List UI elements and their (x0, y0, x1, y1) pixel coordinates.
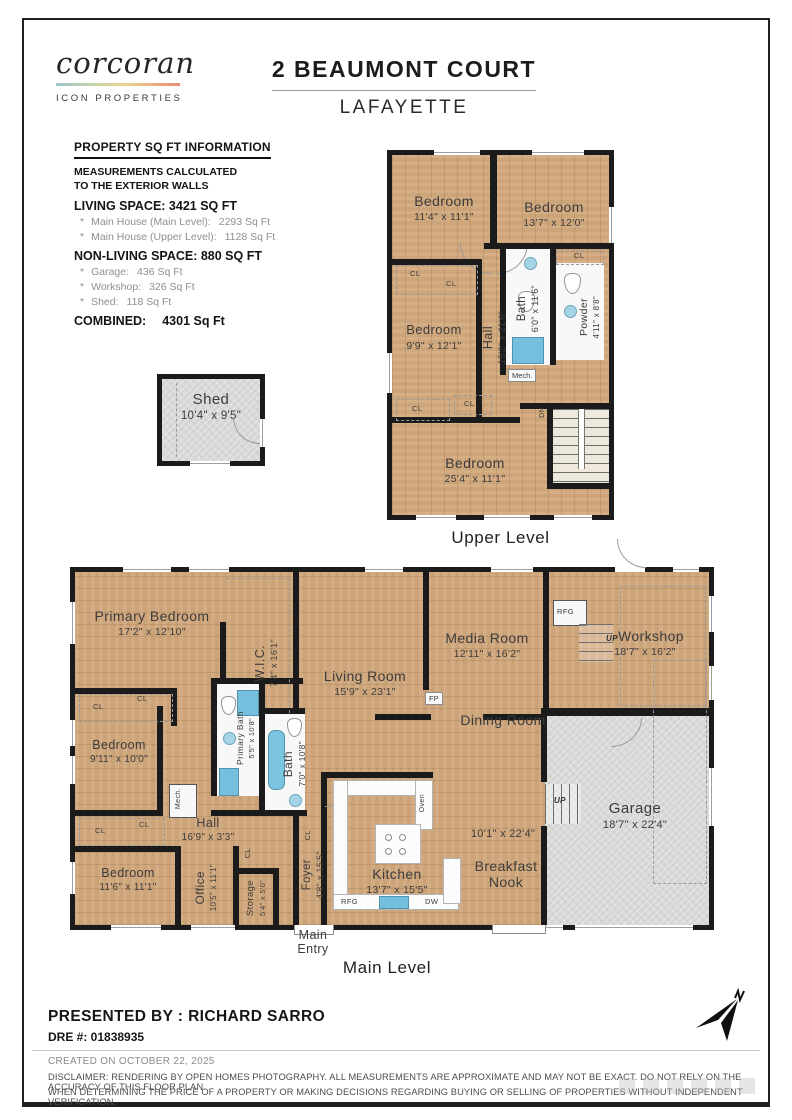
window (709, 666, 714, 700)
room-name: Bedroom (85, 866, 171, 880)
main-level-plan: FP (70, 567, 714, 930)
room-dims: 7'0" x 10'8" (297, 741, 307, 787)
room-name: Bath (281, 751, 295, 777)
room-label-primary-bedroom: Primary Bedroom 17'2" x 12'10" (93, 608, 211, 638)
main-level-caption: Main Level (70, 958, 704, 978)
closet-box (79, 818, 165, 846)
garage-dashed-outline (653, 660, 707, 884)
room-name: Dining Room (459, 712, 547, 728)
page-border: corcoran ICON PROPERTIES 2 BEAUMONT COUR… (22, 18, 770, 1107)
item-value: 326 Sq Ft (149, 281, 195, 293)
window (673, 567, 699, 572)
room-name: Bedroom (504, 199, 604, 215)
room-dims: 16'9" x 3'3" (165, 832, 251, 843)
room-label-bedroom: Bedroom 13'7" x 12'0" (504, 199, 604, 229)
window (709, 596, 714, 632)
title-divider (272, 90, 536, 91)
kitchen-island (375, 824, 421, 864)
window (387, 353, 392, 393)
room-name: Shed (166, 391, 256, 408)
workshop-up-label: UP (606, 634, 618, 643)
window (365, 567, 403, 572)
room-name: Hall (165, 816, 251, 830)
bullet: * (80, 281, 84, 293)
combined-label: COMBINED: (74, 314, 146, 328)
oven-label: Oven (419, 794, 426, 812)
room-dims: 25'4" x 11'1" (420, 473, 530, 485)
closet-label: CL (574, 251, 584, 260)
room-dims: 13'7" x 12'0" (504, 217, 604, 229)
room-label-bedroom: Bedroom 9'9" x 12'1" (392, 323, 476, 352)
fireplace-label: FP (425, 692, 443, 705)
item-label: Main House (Upper Level): (91, 231, 216, 243)
kitchen-counter (333, 780, 348, 910)
room-dims: 4'11" x 8'8" (592, 296, 601, 338)
room-dims: 18'7" x 22'4" (587, 819, 683, 831)
room-name: Powder (578, 298, 590, 336)
room-dims: 12'11" x 16'2" (433, 648, 541, 660)
patio-step (492, 925, 546, 934)
room-name: Bath (516, 296, 528, 321)
window (70, 756, 75, 784)
shed-door-opening (260, 419, 265, 447)
title-block: 2 BEAUMONT COURT LAFAYETTE (249, 56, 559, 119)
room-name: Living Room (311, 668, 419, 684)
presented-by: PRESENTED BY : RICHARD SARRO (48, 1008, 325, 1026)
stairs-dn-label: DN (539, 407, 546, 418)
floorplan-page: corcoran ICON PROPERTIES 2 BEAUMONT COUR… (0, 0, 792, 1120)
room-label-bath: Bath 6'0" x 11'6" (516, 263, 540, 355)
living-item-upper-level: *Main House (Upper Level):1128 Sq Ft (80, 231, 314, 243)
brand-subtitle: ICON PROPERTIES (56, 93, 196, 104)
upper-level-caption: Upper Level (387, 528, 614, 548)
bullet: * (80, 266, 84, 278)
sqft-note-1: MEASUREMENTS CALCULATED (74, 166, 314, 180)
window (111, 925, 161, 930)
room-label-bedroom: Bedroom 11'6" x 11'1" (85, 866, 171, 893)
room-label-breakfast-nook: Breakfast Nook (461, 858, 551, 890)
dw-label: DW (425, 897, 438, 906)
item-value: 2293 Sq Ft (219, 216, 270, 228)
room-label-workshop: UPWorkshop 18'7" x 16'2" (587, 628, 703, 658)
room-dims: 15'9" x 23'1" (311, 686, 419, 698)
room-name: Bedroom (420, 455, 530, 471)
combined-value: 4301 Sq Ft (162, 314, 225, 328)
shed-plan: Shed 10'4" x 9'5" (157, 374, 265, 466)
window (70, 720, 75, 746)
window (416, 515, 456, 520)
room-label-kitchen: Kitchen 13'7" x 15'5" (351, 866, 443, 896)
cooktop-burner (399, 848, 406, 855)
photography-watermark (619, 1078, 757, 1094)
item-value: 118 Sq Ft (127, 296, 172, 308)
room-name: Bedroom (398, 193, 490, 209)
garage-door (575, 925, 693, 930)
brand-gradient-bar (56, 83, 180, 86)
closet-label: CL (446, 279, 456, 288)
room-name: Media Room (433, 630, 541, 646)
shed-door-arc (233, 417, 260, 444)
room-dims: 5'5" x 10'8" (247, 718, 256, 759)
window (609, 207, 614, 243)
kitchen-sink (379, 896, 409, 909)
closet-label: CL (243, 848, 252, 858)
rfg-label: RFG (341, 897, 358, 906)
mech-label: Mech. (508, 369, 536, 382)
room-dims: 11'6" x 11'1" (85, 882, 171, 893)
room-dims: 18'7" x 16'2" (587, 646, 703, 658)
sqft-heading: PROPERTY SQ FT INFORMATION (74, 140, 271, 159)
window (554, 515, 592, 520)
room-dims: 9'9" x 12'1" (392, 340, 476, 352)
sqft-info-panel: PROPERTY SQ FT INFORMATION MEASUREMENTS … (74, 138, 314, 328)
room-name: UPWorkshop (587, 628, 703, 644)
closet-label: CL (464, 399, 474, 408)
wall (175, 846, 181, 925)
cooktop-burner (399, 834, 406, 841)
wall (490, 155, 497, 243)
room-name: Bedroom (392, 323, 476, 338)
wall (547, 483, 609, 489)
room-label-hall: Hall 16'9" x 3'3" (165, 816, 251, 843)
wall (543, 572, 549, 712)
room-label-bedroom: Bedroom 25'4" x 11'1" (420, 455, 530, 485)
room-label-powder: Powder 4'11" x 8'8" (578, 277, 601, 357)
closet-label: CL (139, 820, 149, 829)
room-dims: 6'0" x 11'6" (530, 285, 540, 332)
room-label-foyer: Foyer 4'8" x 15'5" (301, 828, 325, 922)
window (191, 925, 235, 930)
item-label: Workshop: (91, 281, 141, 293)
north-arrow-icon (692, 986, 746, 1049)
living-item-main-level: *Main House (Main Level):2293 Sq Ft (80, 216, 314, 228)
room-label-bath: Bath 7'0" x 10'8" (281, 722, 307, 806)
footer-divider (32, 1050, 760, 1051)
rfg-label: RFG (557, 607, 574, 616)
sqft-note-2: TO THE EXTERIOR WALLS (74, 180, 314, 194)
wall (75, 810, 163, 816)
room-name: Foyer (301, 859, 313, 890)
closet-box (396, 399, 450, 421)
window (491, 567, 533, 572)
room-label-garage: Garage 18'7" x 22'4" (587, 800, 683, 831)
closet-box (396, 265, 478, 295)
wall (423, 572, 429, 690)
room-dims: 10'1" x 22'4" (453, 828, 553, 840)
nonliving-space-heading: NON-LIVING SPACE: 880 SQ FT (74, 249, 314, 263)
closet-label: CL (95, 826, 105, 835)
garage-window (709, 768, 714, 826)
room-label-primary-bath: Primary Bath 5'5" x 10'8" (235, 692, 256, 784)
room-name: Garage (587, 800, 683, 817)
room-dims: 10'5" x 11'1" (209, 864, 218, 911)
main-entry-label: Main Entry (276, 928, 350, 957)
wall (375, 714, 431, 720)
cooktop-burner (385, 848, 392, 855)
room-dims: 7'4" x 16'1" (269, 639, 279, 687)
window (189, 567, 229, 572)
room-label-bedroom: Bedroom 11'4" x 11'1" (398, 193, 490, 223)
wall (550, 249, 556, 365)
wall (75, 846, 181, 852)
room-name: Hall (481, 326, 495, 349)
room-label-bedroom: Bedroom 9'11" x 10'0" (79, 738, 159, 765)
window (70, 602, 75, 644)
mech-closet (169, 784, 197, 818)
wall (273, 868, 279, 925)
brand-logo: corcoran (56, 46, 196, 80)
combined-total: COMBINED:4301 Sq Ft (74, 314, 314, 328)
room-dims: 4'8" x 15'5" (315, 851, 325, 899)
entry-line: Main (276, 928, 350, 942)
room-dims: 17'2" x 12'10" (93, 626, 211, 638)
nonliving-item-garage: *Garage:436 Sq Ft (80, 266, 314, 278)
shed-window (190, 461, 230, 466)
living-space-heading: LIVING SPACE: 3421 SQ FT (74, 199, 314, 213)
room-dims: 13'7" x 15'5" (351, 884, 443, 896)
room-label-office: Office 10'5" x 11'1" (193, 856, 218, 920)
room-name: Office (193, 871, 207, 905)
room-dims: 15'2" x 21'6" (497, 311, 507, 364)
item-value: 436 Sq Ft (137, 266, 183, 278)
room-dims: 9'11" x 10'0" (79, 754, 159, 765)
item-label: Garage: (91, 266, 129, 278)
room-name: Primary Bedroom (93, 608, 211, 624)
sink (564, 305, 577, 318)
room-name: Breakfast Nook (461, 858, 551, 890)
window (123, 567, 171, 572)
closet-label: CL (137, 694, 147, 703)
window (484, 515, 530, 520)
cooktop-burner (385, 834, 392, 841)
room-dims: 5'4" x 5'0" (258, 880, 267, 916)
closet-label: CL (93, 702, 103, 711)
nonliving-item-shed: *Shed:118 Sq Ft (80, 296, 314, 308)
window (434, 150, 480, 155)
kitchen-counter (443, 858, 461, 904)
item-value: 1128 Sq Ft (225, 231, 276, 243)
item-label: Shed: (91, 296, 118, 308)
room-name: Storage (245, 880, 256, 916)
exterior-door-arc (617, 539, 646, 568)
created-date: CREATED ON OCTOBER 22, 2025 (48, 1056, 215, 1067)
page-subtitle: LAFAYETTE (249, 97, 559, 119)
dining-room-dims: 10'1" x 22'4" (453, 826, 553, 840)
room-label-wic: W.I.C. 7'4" x 16'1" (253, 608, 279, 718)
brand-block: corcoran ICON PROPERTIES (56, 46, 196, 104)
exterior-door-opening (615, 567, 645, 572)
mech-label: Mech. (175, 788, 182, 809)
room-label-media-room: Media Room 12'11" x 16'2" (433, 630, 541, 660)
room-name: Kitchen (351, 866, 443, 882)
nonliving-item-workshop: *Workshop:326 Sq Ft (80, 281, 314, 293)
wall (293, 800, 299, 925)
stair-stringer (578, 409, 585, 469)
north-arrow-svg (692, 986, 746, 1044)
room-label-storage: Storage 5'4" x 5'0" (245, 874, 267, 922)
room-name: Bedroom (79, 738, 159, 752)
window (532, 150, 584, 155)
garage-up-label: UP (554, 796, 566, 805)
room-label-dining-room: Dining Room (459, 712, 547, 728)
room-name: Primary Bath (235, 711, 245, 765)
closet-label: CL (410, 269, 420, 278)
dre-number: DRE #: 01838935 (48, 1030, 144, 1044)
page-title: 2 BEAUMONT COURT (249, 56, 559, 83)
bullet: * (80, 231, 84, 243)
wall (233, 846, 239, 925)
entry-line: Entry (276, 942, 350, 956)
window (70, 862, 75, 894)
room-label-living-room: Living Room 15'9" x 23'1" (311, 668, 419, 698)
item-label: Main House (Main Level): (91, 216, 211, 228)
room-dims: 11'4" x 11'1" (398, 211, 490, 223)
room-label-hall: Hall 15'2" x 21'6" (481, 283, 507, 393)
bullet: * (80, 296, 84, 308)
bullet: * (80, 216, 84, 228)
closet-label: CL (412, 404, 422, 413)
room-name: W.I.C. (253, 645, 267, 681)
upper-level-plan: CL CL CL CL CL Mech. DN Bedroom 11'4" x … (387, 150, 614, 520)
